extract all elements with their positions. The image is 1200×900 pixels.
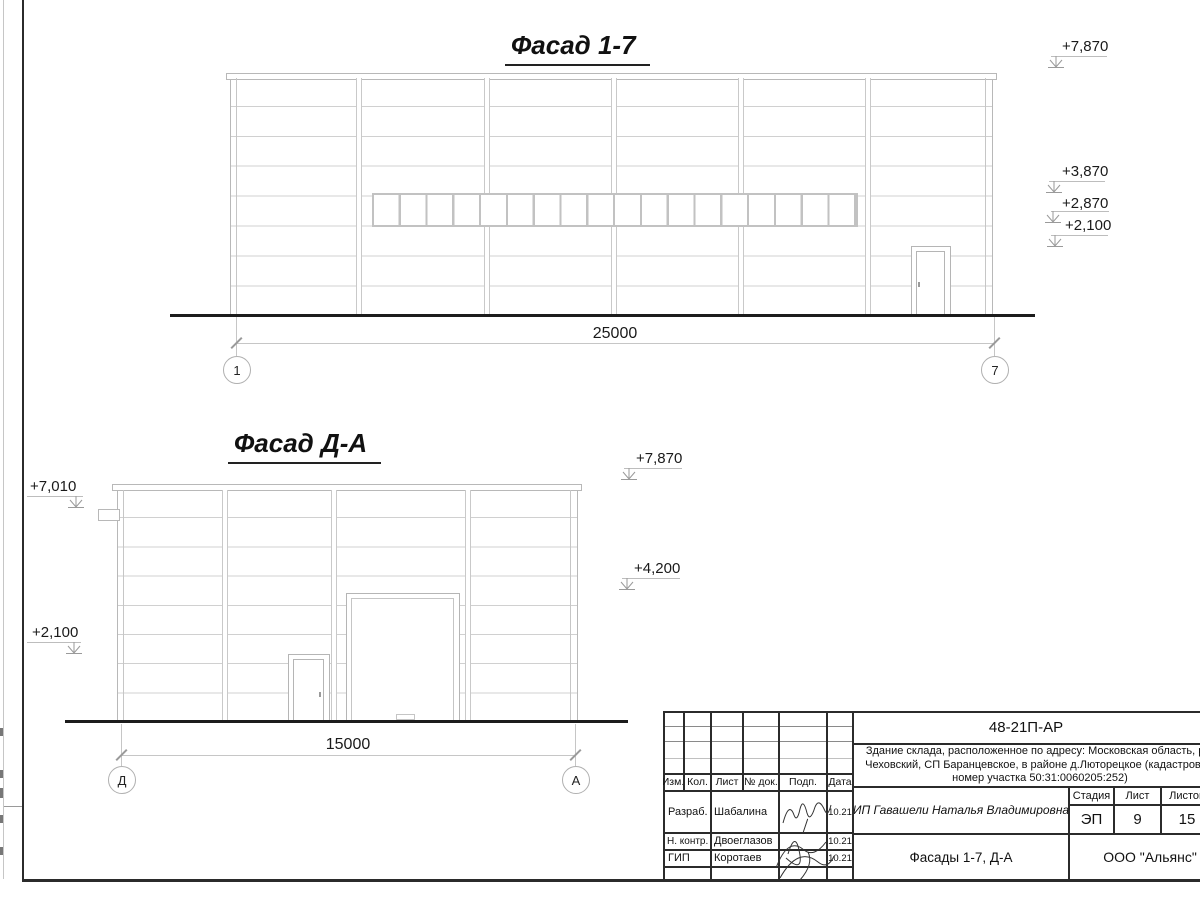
frame-attr-divider — [4, 806, 22, 807]
row-name: Шабалина — [712, 792, 780, 832]
frame-border-bottom — [22, 879, 1200, 882]
side-door-leaf — [293, 659, 324, 722]
signature — [770, 830, 840, 882]
row-role: ГИП — [665, 850, 714, 866]
client-name: ИП Гавашели Наталья Владимировна — [854, 788, 1068, 832]
dimension-label: 15000 — [288, 736, 408, 754]
elevation-label: +2,100 — [32, 624, 78, 641]
col-doc: № док. — [744, 773, 778, 790]
elevation-label: +2,100 — [1065, 217, 1111, 234]
elevation-mark-icon — [1046, 235, 1064, 251]
project-name: Здание склада, расположенное по адресу: … — [854, 745, 1200, 786]
signature — [781, 793, 833, 835]
sheet-title: Фасады 1-7, Д-А — [854, 835, 1068, 879]
edge-line — [236, 78, 237, 314]
door-leaf — [916, 251, 945, 315]
stage-label: Стадия — [1070, 788, 1113, 804]
elevation-label: +7,870 — [636, 450, 682, 467]
col-data: Дата — [828, 773, 852, 790]
extension-line — [575, 724, 576, 766]
facade-d-a-parapet-cap — [112, 484, 582, 491]
grid-bubble-a: А — [562, 766, 590, 794]
ground-line — [170, 314, 1035, 317]
column-line — [356, 78, 362, 314]
elevation-label: +4,200 — [634, 560, 680, 577]
edge-line — [123, 490, 124, 721]
column-line — [465, 490, 471, 721]
frame-attr-text-fragment — [0, 788, 3, 798]
col-kol: Кол. — [685, 773, 710, 790]
sheet-number: 9 — [1115, 806, 1160, 832]
facade-1-7-title: Фасад 1-7 — [505, 30, 650, 66]
edge-line — [570, 490, 571, 721]
edge-line — [985, 78, 986, 314]
side-door-handle — [319, 692, 321, 697]
gate-leaf — [351, 598, 454, 722]
grid-bubble-d: Д — [108, 766, 136, 794]
stage-value: ЭП — [1070, 806, 1113, 832]
row-role: Разраб. — [665, 792, 713, 832]
frame-attr-text-fragment — [0, 847, 3, 855]
col-podp: Подп. — [780, 773, 826, 790]
elevation-mark-icon — [620, 468, 638, 484]
frame-attr-text-fragment — [0, 728, 3, 736]
sheets-total: 15 — [1162, 806, 1200, 832]
frame-attr-text-fragment — [0, 815, 3, 823]
door-handle — [918, 282, 920, 287]
sheet-label: Лист — [1115, 788, 1160, 804]
drawing-sheet: Фасад 1-7 25000 1 7 +7,870 +3,870 +2,870… — [0, 0, 1200, 900]
col-list: Лист — [712, 773, 742, 790]
row-role: Н. контр. — [665, 833, 713, 849]
elevation-label: +7,870 — [1062, 38, 1108, 55]
column-line — [865, 78, 871, 314]
elevation-mark-icon — [65, 642, 83, 658]
grid-bubble-1: 1 — [223, 356, 251, 384]
frame-border-left — [22, 0, 24, 881]
grid-bubble-7: 7 — [981, 356, 1009, 384]
dimension-label: 25000 — [555, 325, 675, 343]
ground-line — [65, 720, 628, 723]
facade-d-a-title: Фасад Д-А — [228, 428, 381, 464]
elevation-mark-icon — [1044, 211, 1062, 227]
col-izm: Изм. — [663, 773, 683, 790]
extension-line — [121, 724, 122, 766]
dimension-line — [121, 755, 575, 756]
frame-attr-column-line — [3, 0, 4, 879]
sheets-label: Листов — [1162, 788, 1200, 804]
elevation-label: +2,870 — [1062, 195, 1108, 212]
elevation-mark-icon — [618, 578, 636, 594]
elevation-mark-icon — [67, 496, 85, 512]
elevation-mark-icon — [1047, 56, 1065, 72]
elevation-label: +3,870 — [1062, 163, 1108, 180]
elevation-label: +7,010 — [30, 478, 76, 495]
column-line — [331, 490, 337, 721]
ribbon-window-band — [372, 193, 858, 227]
extension-line — [236, 317, 237, 356]
company-name: ООО "Альянс" — [1070, 835, 1200, 879]
extension-line — [994, 317, 995, 356]
frame-attr-text-fragment — [0, 770, 3, 778]
doc-code: 48-21П-АР — [852, 713, 1200, 741]
gutter-outlet — [98, 509, 120, 521]
dimension-line — [236, 343, 994, 344]
elevation-mark-icon — [1045, 181, 1063, 197]
column-line — [222, 490, 228, 721]
